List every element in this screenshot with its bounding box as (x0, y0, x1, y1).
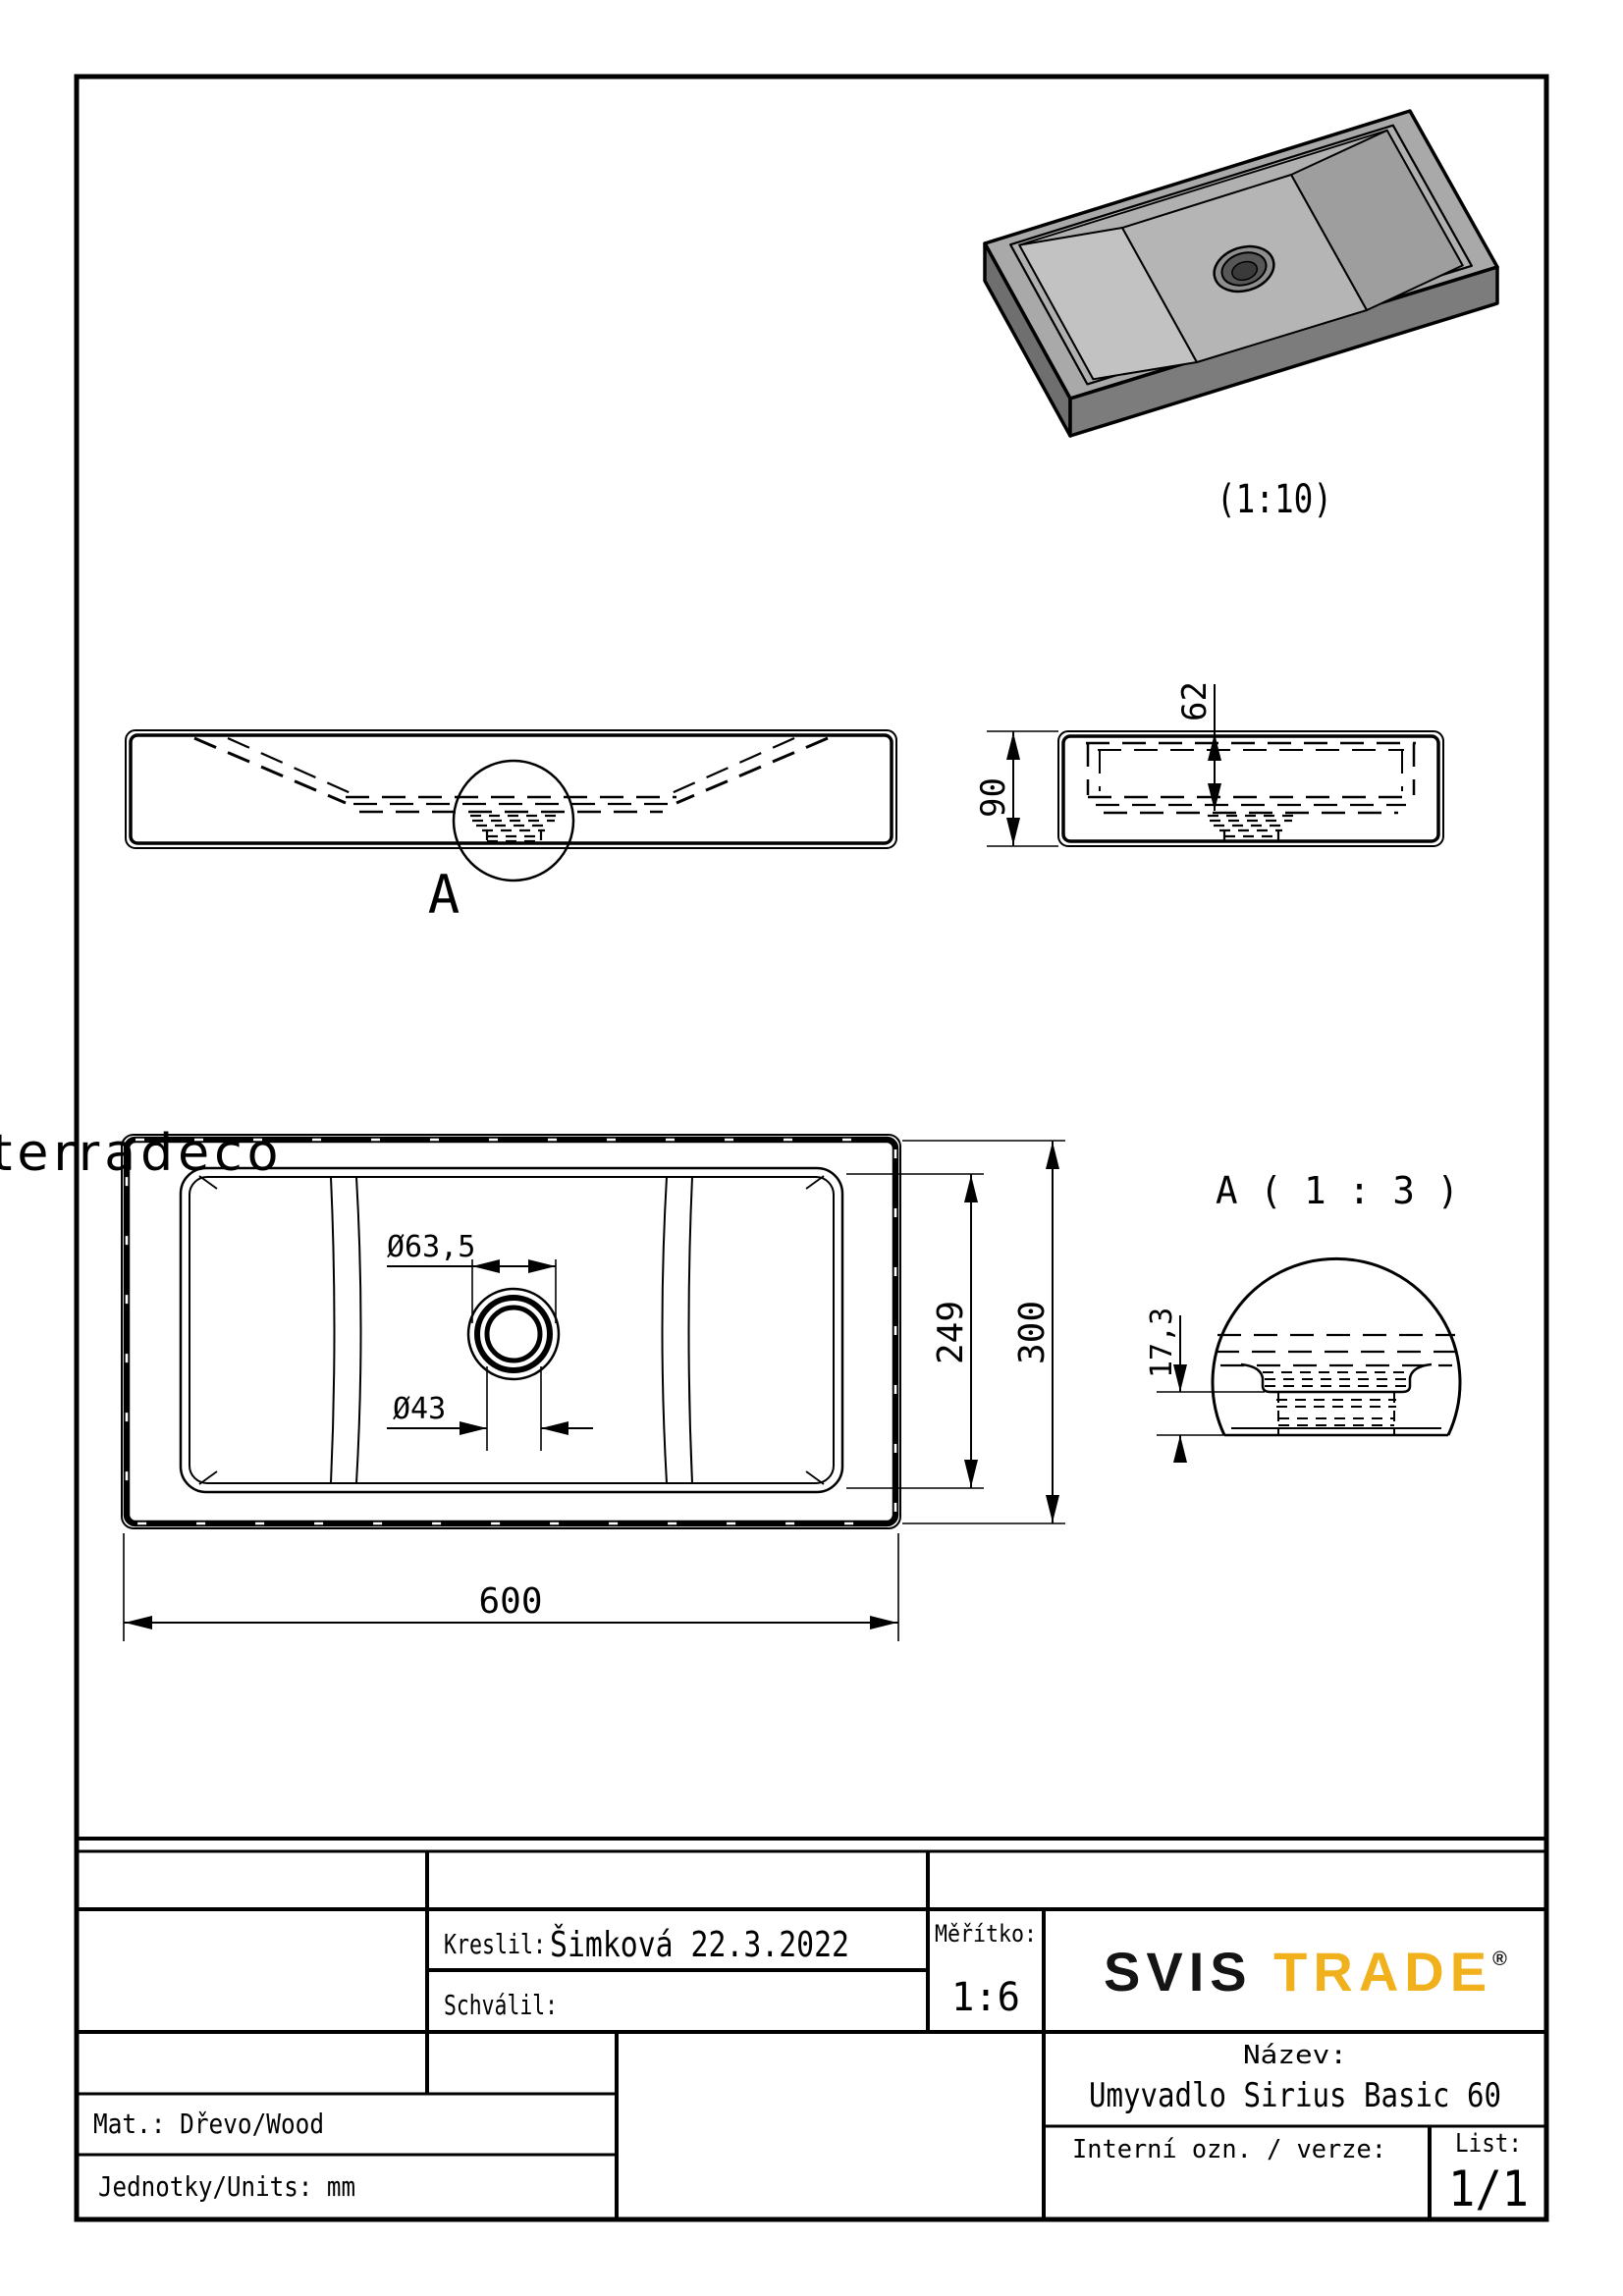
kreslil-label: Kreslil: (444, 1928, 546, 1960)
logo-svis: SVIS (1104, 1941, 1273, 2002)
meritko-label: Měřítko: (935, 1920, 1037, 1948)
svg-text:300: 300 (1012, 1301, 1053, 1364)
dim-drain-outer: Ø63,5 (387, 1230, 556, 1323)
svg-text:62: 62 (1175, 681, 1215, 721)
dim-600: 600 (124, 1533, 898, 1641)
view-detail-a: A ( 1 : 3 ) 17,3 (1145, 1169, 1460, 1463)
dim-249: 249 (846, 1174, 984, 1488)
svg-text:Ø63,5: Ø63,5 (387, 1230, 475, 1264)
drawing-sheet: terradeco (1:10) (0, 0, 1623, 2296)
view-plan: Ø63,5 Ø43 600 249 (122, 1135, 1065, 1641)
view-side: 62 90 (974, 681, 1443, 846)
drawing-svg: terradeco (1:10) (0, 0, 1623, 2296)
logo: SVIS TRADE® (1104, 1941, 1513, 2002)
page-border (77, 77, 1546, 2219)
svg-text:249: 249 (931, 1301, 971, 1364)
nazev-label: Název: (1243, 2041, 1347, 2070)
svg-text:Ø43: Ø43 (393, 1392, 446, 1426)
detail-a-marker: A (428, 864, 460, 926)
svg-text:17,3: 17,3 (1145, 1308, 1179, 1378)
kreslil-value: Šimková 22.3.2022 (550, 1924, 849, 1965)
dim-drain-inner: Ø43 (387, 1366, 593, 1451)
dim-300: 300 (902, 1141, 1065, 1523)
dim-17-3: 17,3 (1145, 1308, 1265, 1463)
dim-90: 90 (974, 731, 1058, 846)
mat-value: Mat.: Dřevo/Wood (93, 2108, 324, 2140)
svg-text:90: 90 (974, 777, 1013, 818)
view-front: A (126, 730, 896, 926)
3d-scale-label: (1:10) (1217, 477, 1332, 522)
logo-reg-mark: ® (1492, 1949, 1513, 1970)
title-block: Kreslil: Šimková 22.3.2022 Schválil: Měř… (77, 1839, 1546, 2219)
interni-label: Interní ozn. / verze: (1072, 2135, 1386, 2164)
svg-text:600: 600 (478, 1581, 542, 1622)
view-3d: (1:10) (985, 111, 1497, 522)
watermark-text: terradeco (0, 1124, 284, 1183)
dim-62: 62 (1175, 681, 1221, 811)
detail-title: A ( 1 : 3 ) (1216, 1169, 1459, 1212)
logo-trade: TRADE (1273, 1941, 1492, 2002)
list-label: List: (1455, 2129, 1522, 2159)
meritko-value: 1:6 (951, 1975, 1020, 2020)
schvalil-label: Schválil: (444, 1989, 558, 2021)
list-value: 1/1 (1448, 2161, 1529, 2217)
jednotky-value: Jednotky/Units: mm (98, 2170, 355, 2203)
nazev-value: Umyvadlo Sirius Basic 60 (1089, 2076, 1501, 2115)
